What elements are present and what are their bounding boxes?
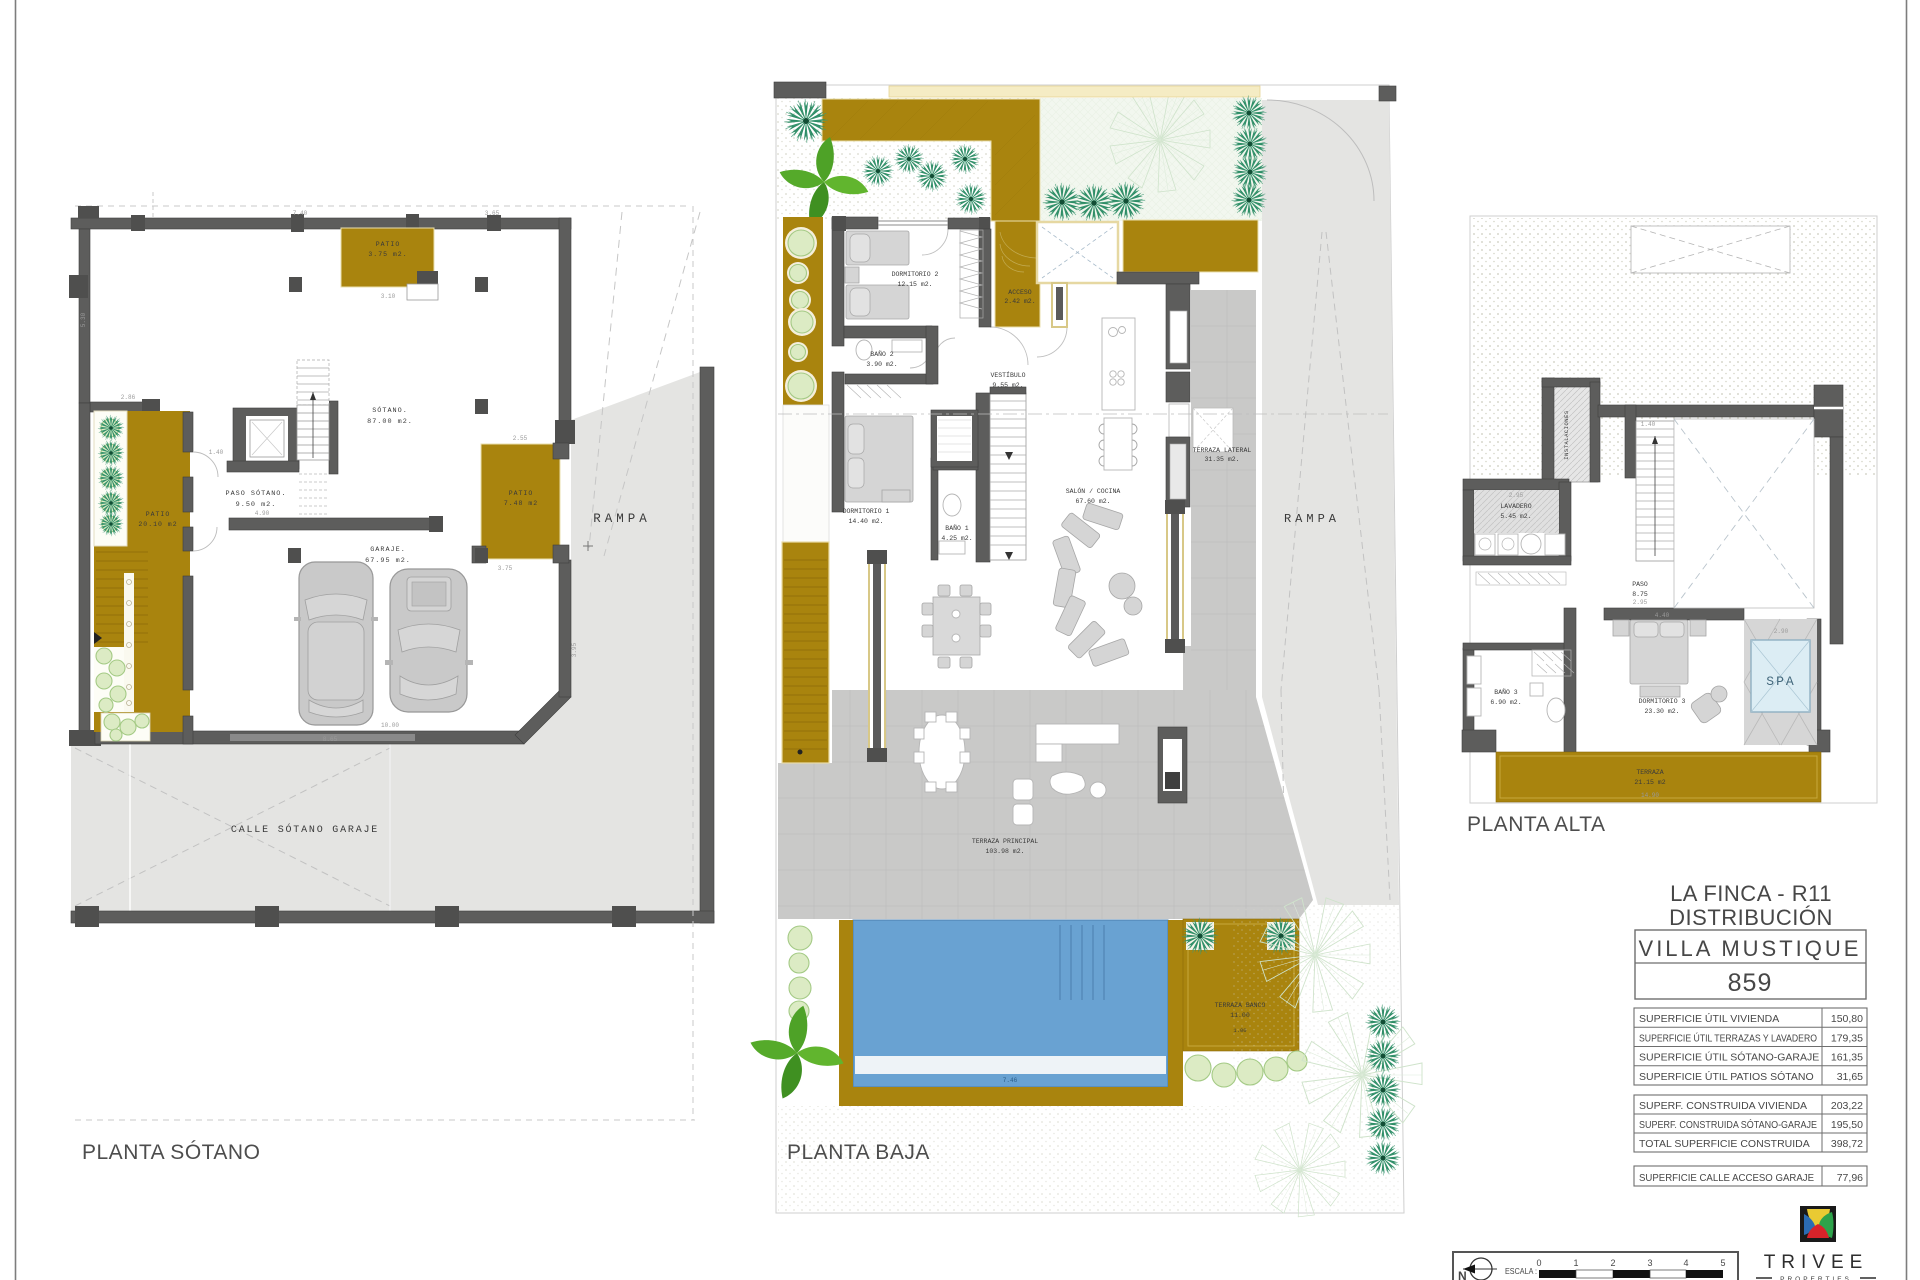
svg-text:SUPERFICIE ÚTIL SÓTANO-GARAJE: SUPERFICIE ÚTIL SÓTANO-GARAJE (1639, 1051, 1819, 1064)
svg-text:PATIO: PATIO (376, 241, 401, 248)
svg-text:10.00: 10.00 (381, 722, 399, 729)
svg-text:RAMPA: RAMPA (593, 512, 651, 526)
svg-text:SUPERFICIE ÚTIL TERRAZAS Y LAV: SUPERFICIE ÚTIL TERRAZAS Y LAVADERO (1639, 1032, 1817, 1045)
svg-text:LAVADERO: LAVADERO (1500, 503, 1531, 510)
svg-text:2: 2 (1610, 1258, 1615, 1268)
svg-text:6.90 m2.: 6.90 m2. (1490, 699, 1521, 706)
svg-text:DORMITORIO 3: DORMITORIO 3 (1639, 698, 1686, 705)
svg-text:BAÑO 2: BAÑO 2 (870, 350, 894, 358)
svg-text:0: 0 (1536, 1258, 1541, 1268)
svg-text:VESTÍBULO: VESTÍBULO (990, 371, 1025, 379)
svg-text:179,35: 179,35 (1831, 1033, 1863, 1045)
svg-text:5.45 m2.: 5.45 m2. (1500, 513, 1531, 520)
svg-text:LA FINCA - R11: LA FINCA - R11 (1670, 881, 1832, 906)
svg-text:4.40: 4.40 (1655, 612, 1670, 619)
svg-text:31.35 m2.: 31.35 m2. (1204, 456, 1239, 463)
svg-text:8.75: 8.75 (1632, 591, 1648, 598)
svg-text:14.90: 14.90 (1641, 792, 1659, 799)
svg-text:1.40: 1.40 (1641, 421, 1656, 428)
svg-text:PATIO: PATIO (509, 490, 534, 497)
svg-text:21.15 m2: 21.15 m2 (1634, 779, 1665, 786)
svg-text:14.40 m2.: 14.40 m2. (848, 518, 883, 525)
svg-text:1.40: 1.40 (209, 449, 224, 456)
svg-text:SUPERFICIE ÚTIL PATIOS SÓTANO: SUPERFICIE ÚTIL PATIOS SÓTANO (1639, 1070, 1814, 1083)
svg-text:161,35: 161,35 (1831, 1052, 1863, 1064)
svg-text:7.46: 7.46 (1003, 1077, 1018, 1084)
svg-text:DISTRIBUCIÓN: DISTRIBUCIÓN (1669, 905, 1833, 930)
svg-text:VILLA MUSTIQUE: VILLA MUSTIQUE (1639, 936, 1862, 961)
svg-text:398,72: 398,72 (1831, 1138, 1863, 1150)
svg-text:SUPERFICIE ÚTIL VIVIENDA: SUPERFICIE ÚTIL VIVIENDA (1639, 1012, 1779, 1025)
svg-text:DORMITORIO 2: DORMITORIO 2 (892, 271, 939, 278)
svg-text:PROPERTIES: PROPERTIES (1780, 1276, 1852, 1280)
svg-text:103.98 m2.: 103.98 m2. (985, 848, 1024, 855)
svg-text:ESCALA :: ESCALA : (1505, 1267, 1537, 1276)
svg-text:8.65: 8.65 (323, 736, 338, 743)
svg-text:3.65: 3.65 (485, 210, 500, 217)
svg-text:2.42 m2.: 2.42 m2. (1004, 298, 1035, 305)
svg-text:77,96: 77,96 (1837, 1172, 1863, 1184)
svg-text:3.90 m2.: 3.90 m2. (866, 361, 897, 368)
svg-text:PASO: PASO (1632, 581, 1648, 588)
svg-text:TERRAZA: TERRAZA (1636, 769, 1663, 776)
svg-text:SÓTANO.: SÓTANO. (372, 405, 408, 415)
svg-text:859: 859 (1728, 969, 1773, 997)
svg-text:PLANTA BAJA: PLANTA BAJA (787, 1141, 930, 1164)
svg-text:4.90: 4.90 (255, 510, 270, 517)
svg-text:SUPERF. CONSTRUIDA SÓTANO-GARA: SUPERF. CONSTRUIDA SÓTANO-GARAJE (1639, 1118, 1817, 1131)
svg-text:CALLE SÓTANO GARAJE: CALLE SÓTANO GARAJE (231, 822, 379, 836)
svg-text:2.86: 2.86 (121, 394, 136, 401)
svg-text:SUPERF. CONSTRUIDA VIVIENDA: SUPERF. CONSTRUIDA VIVIENDA (1639, 1100, 1807, 1112)
svg-text:TOTAL SUPERFICIE CONSTRUIDA: TOTAL SUPERFICIE CONSTRUIDA (1639, 1138, 1810, 1150)
svg-text:4: 4 (1683, 1258, 1688, 1268)
svg-text:4.25 m2.: 4.25 m2. (941, 535, 972, 542)
svg-text:3.75 m2.: 3.75 m2. (368, 251, 407, 258)
svg-text:3: 3 (1647, 1258, 1652, 1268)
svg-text:1: 1 (1573, 1258, 1578, 1268)
svg-text:20.10 m2: 20.10 m2 (138, 521, 177, 528)
svg-text:31,65: 31,65 (1837, 1071, 1863, 1083)
svg-text:9.50 m2.: 9.50 m2. (236, 501, 277, 509)
svg-text:7.40: 7.40 (293, 210, 308, 217)
svg-text:150,80: 150,80 (1831, 1013, 1863, 1025)
svg-text:2.90: 2.90 (1774, 628, 1789, 635)
svg-text:3.75: 3.75 (498, 565, 513, 572)
svg-text:RAMPA: RAMPA (1284, 512, 1340, 526)
svg-text:BAÑO 1: BAÑO 1 (945, 524, 969, 532)
svg-text:3.10: 3.10 (381, 293, 396, 300)
svg-text:2.95: 2.95 (1509, 492, 1524, 499)
svg-text:N: N (1458, 1269, 1467, 1280)
svg-text:PLANTA ALTA: PLANTA ALTA (1467, 813, 1606, 836)
svg-text:7.48 m2: 7.48 m2 (504, 500, 538, 507)
svg-text:87.00 m2.: 87.00 m2. (367, 418, 413, 426)
svg-text:23.30 m2.: 23.30 m2. (1644, 708, 1679, 715)
svg-text:SALÓN / COCINA: SALÓN / COCINA (1066, 486, 1121, 495)
svg-text:PATIO: PATIO (146, 511, 171, 518)
svg-text:195,50: 195,50 (1831, 1119, 1863, 1131)
svg-text:TERRAZA LATERAL: TERRAZA LATERAL (1193, 447, 1252, 454)
svg-text:ACCESO: ACCESO (1008, 289, 1032, 296)
svg-text:SUPERFICIE CALLE ACCESO GARAJE: SUPERFICIE CALLE ACCESO GARAJE (1639, 1172, 1814, 1184)
svg-text:PASO SÓTANO.: PASO SÓTANO. (226, 488, 287, 498)
svg-text:SPA: SPA (1766, 674, 1795, 689)
svg-text:203,22: 203,22 (1831, 1100, 1863, 1112)
svg-text:2.95: 2.95 (1633, 599, 1648, 606)
svg-text:TRIVEE: TRIVEE (1764, 1252, 1869, 1273)
svg-text:3.95: 3.95 (571, 642, 578, 657)
svg-text:BAÑO 3: BAÑO 3 (1494, 688, 1518, 696)
svg-text:INSTALACIONES: INSTALACIONES (1563, 410, 1570, 460)
svg-text:12.15 m2.: 12.15 m2. (897, 281, 932, 288)
svg-text:5: 5 (1720, 1258, 1725, 1268)
svg-text:PLANTA SÓTANO: PLANTA SÓTANO (82, 1141, 260, 1164)
svg-text:67.95 m2.: 67.95 m2. (365, 557, 411, 565)
svg-text:GARAJE.: GARAJE. (370, 546, 406, 554)
svg-text:2.55: 2.55 (513, 435, 528, 442)
svg-text:5.30: 5.30 (80, 312, 87, 327)
svg-text:TERRAZA PRINCIPAL: TERRAZA PRINCIPAL (972, 838, 1038, 845)
svg-text:DORMITORIO 1: DORMITORIO 1 (843, 508, 890, 515)
